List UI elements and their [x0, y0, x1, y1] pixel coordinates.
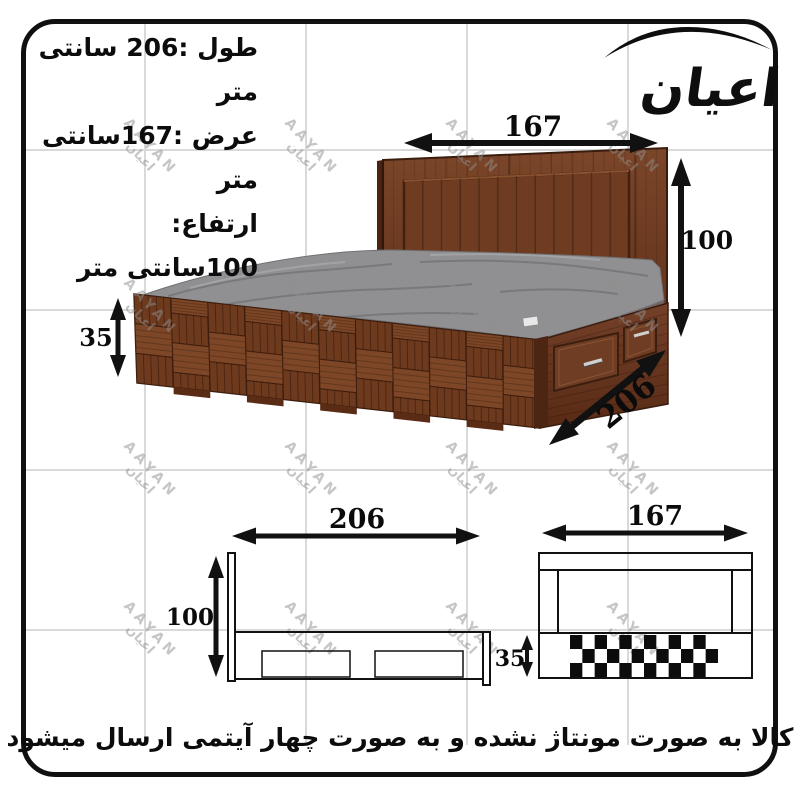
side-view-length-label: 206 — [329, 504, 385, 535]
photo-height-label: 100 — [681, 226, 733, 255]
headboard-profile — [228, 553, 235, 681]
arrow-head — [208, 655, 224, 677]
base-profile — [235, 632, 489, 679]
arrow-head — [671, 309, 691, 337]
arrow-head — [671, 158, 691, 186]
front-view-base-height-label: 35 — [495, 646, 526, 672]
spec-width: عرض :167سانتی متر — [34, 114, 258, 202]
arrow-head — [110, 298, 126, 320]
front-view-drawing — [539, 553, 752, 678]
spec-lines: طول :206 سانتی متر عرض :167سانتی متر ارت… — [34, 26, 258, 290]
photo-base-height-label: 35 — [79, 323, 112, 352]
photo-width-label: 167 — [504, 110, 562, 143]
front-view-outline — [539, 553, 752, 678]
footboard-profile — [483, 632, 490, 685]
brand-logo-text: اعیان — [600, 64, 783, 114]
arrow-head — [724, 525, 748, 542]
checker-pattern — [570, 635, 718, 677]
logo-swoosh-icon — [600, 18, 776, 60]
photo-length-label: 206 — [591, 368, 664, 437]
base-cutout-2 — [375, 651, 463, 677]
arrow-head — [542, 525, 566, 542]
arrow-head — [630, 133, 658, 153]
product-spec-sheet: AAYANاعیان AAYANاعیان AAYANاعیان AAYANاع… — [0, 0, 800, 800]
spec-length: طول :206 سانتی متر — [34, 26, 258, 114]
spec-height: ارتفاع: 100سانتی متر — [34, 202, 258, 290]
side-view-height-label: 100 — [166, 604, 214, 631]
brand-logo: اعیان — [600, 18, 776, 114]
arrow-head — [232, 528, 256, 545]
footer-note: کالا به صورت مونتاژ نشده و به صورت چهار … — [0, 723, 800, 752]
arrow-head — [110, 355, 126, 377]
front-view-width-label: 167 — [627, 501, 683, 532]
side-view-drawing — [228, 553, 490, 685]
arrow-head — [208, 556, 224, 578]
base-cutout-1 — [262, 651, 350, 677]
arrow-head — [404, 133, 432, 153]
arrow-head — [456, 528, 480, 545]
